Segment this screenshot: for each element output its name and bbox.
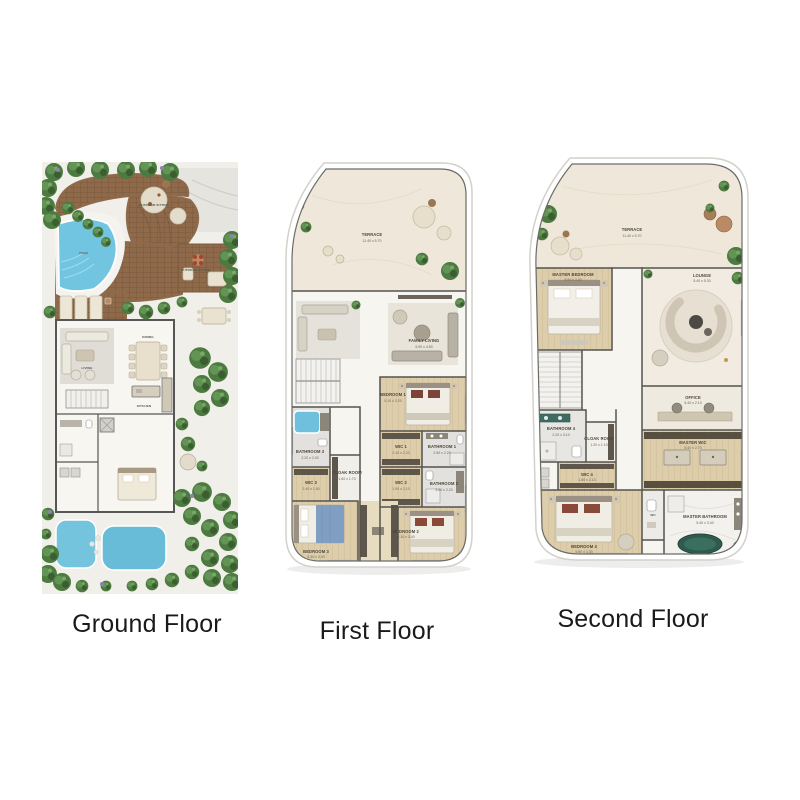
wc: WC bbox=[642, 490, 664, 540]
outdoor-sitting-right-label: OUTDOOR SITTING bbox=[181, 268, 212, 272]
stairs bbox=[538, 352, 582, 408]
room-dims: 1.20 x 1.10 bbox=[590, 443, 607, 447]
cabinet bbox=[332, 457, 338, 499]
sofa bbox=[62, 344, 71, 374]
round-chair bbox=[618, 534, 634, 550]
washer bbox=[71, 468, 80, 477]
armchair bbox=[85, 370, 95, 380]
master-wic: MASTER WIC 5.40 x 2.70 bbox=[642, 430, 744, 490]
armchair bbox=[71, 370, 81, 380]
room-dims: 1.60 x 1.70 bbox=[338, 477, 355, 481]
terrace-seat bbox=[437, 226, 451, 240]
villa-ground-interior: LIVING DINING KITCHEN bbox=[56, 320, 174, 512]
room-label: BEDROOM 1 bbox=[380, 392, 406, 397]
room-dims: 3.50 x 2.20 bbox=[435, 488, 452, 492]
room-dims: 2.20 x 2.00 bbox=[301, 456, 318, 460]
second-floor-plan: TERRACE 11.40 x 5.70 MASTER BEDROOM 5.90… bbox=[512, 150, 757, 585]
vanity bbox=[320, 413, 329, 431]
room-dims: 5.10 x 3.20 bbox=[384, 399, 401, 403]
armchair bbox=[393, 310, 407, 324]
room-dims: 5.10 x 3.40 bbox=[397, 535, 414, 539]
wardrobe bbox=[294, 469, 328, 475]
room-label: WC bbox=[650, 513, 656, 517]
master-bathroom: MASTER BATHROOM 5.40 x 3.40 bbox=[664, 490, 744, 554]
room-dims: 1.80 x 2.10 bbox=[578, 478, 595, 482]
room-label: WIC 4 bbox=[581, 472, 593, 477]
console bbox=[372, 527, 384, 535]
desk-chair bbox=[704, 403, 714, 413]
room-dims: 2.40 x 1.80 bbox=[302, 487, 319, 491]
room-label: CLOAK ROOM bbox=[332, 470, 362, 475]
terrace-seat bbox=[551, 237, 569, 255]
family-living: FAMILY LIVING 5.90 x 4.50 bbox=[388, 295, 465, 365]
room-dims: 5.30 x 3.40 bbox=[307, 555, 324, 559]
side-table bbox=[704, 328, 712, 336]
coffee-table bbox=[76, 350, 94, 361]
shower bbox=[450, 453, 464, 465]
bed bbox=[294, 505, 344, 543]
vanity bbox=[60, 420, 82, 427]
kitchen-label: KITCHEN bbox=[137, 404, 152, 408]
bedroom4: BEDROOM 4 5.90 x 3.30 bbox=[536, 490, 642, 554]
wic4: WIC 4 1.80 x 2.10 bbox=[558, 462, 616, 490]
room-label: TERRACE bbox=[362, 232, 383, 237]
sofa bbox=[302, 305, 348, 314]
stairs bbox=[66, 390, 108, 408]
sofa bbox=[448, 313, 458, 357]
wardrobe bbox=[644, 432, 742, 439]
room-label: BATHROOM 1 bbox=[428, 444, 457, 449]
room-label: MASTER BATHROOM bbox=[683, 514, 727, 519]
round-chair bbox=[180, 454, 196, 470]
basin bbox=[647, 522, 656, 528]
shower bbox=[60, 444, 72, 456]
wc-fixture bbox=[426, 471, 433, 480]
wc-fixture bbox=[457, 435, 463, 444]
room-label: BATHROOM 4 bbox=[547, 426, 576, 431]
wardrobe bbox=[560, 464, 614, 469]
room-label: MASTER WIC bbox=[679, 440, 706, 445]
bathroom4: BATHROOM 4 2.20 x 3.10 bbox=[536, 410, 586, 462]
kitchen-counter bbox=[162, 378, 172, 412]
bed bbox=[399, 383, 457, 425]
room-dims: 2.90 x 2.20 bbox=[433, 451, 450, 455]
room-label: OFFICE bbox=[685, 395, 701, 400]
terrace-table bbox=[563, 231, 570, 238]
terrace-table bbox=[428, 199, 436, 207]
wc-fixture bbox=[572, 446, 581, 457]
wc-fixture bbox=[86, 420, 92, 428]
wardrobe bbox=[644, 481, 742, 488]
wardrobe bbox=[382, 469, 420, 475]
cloak-room: CLOAK ROOM 1.20 x 1.10 bbox=[584, 422, 616, 462]
vanity bbox=[426, 433, 448, 439]
room-dims: 5.40 x 3.40 bbox=[696, 521, 713, 525]
terrace-table bbox=[323, 246, 333, 256]
room-dims: 5.90 x 4.50 bbox=[415, 345, 432, 349]
room-dims: 11.40 x 5.70 bbox=[622, 234, 641, 238]
vanity bbox=[538, 414, 570, 422]
desk bbox=[658, 412, 732, 421]
water-features bbox=[56, 520, 166, 570]
washer bbox=[60, 468, 69, 477]
first-floor-caption: First Floor bbox=[270, 617, 484, 646]
room-label: CLOAK ROOM bbox=[584, 436, 614, 441]
room-label: BATHROOM 3 bbox=[296, 449, 325, 454]
sofa bbox=[392, 351, 442, 361]
ground-floor-caption: Ground Floor bbox=[42, 610, 252, 639]
room-dims: 2.10 x 2.20 bbox=[392, 451, 409, 455]
tv-console bbox=[398, 295, 452, 299]
terrace-table bbox=[336, 255, 344, 263]
room-label: WIC 2 bbox=[395, 480, 407, 485]
floor-plans-page: POOL OUTDOOR SITTING OUTDOOR SITTING LIV… bbox=[0, 0, 800, 800]
coffee-table bbox=[689, 315, 703, 329]
room-label: LOUNGE bbox=[693, 273, 711, 278]
cabinet bbox=[608, 424, 614, 460]
room-dims: 5.40 x 5.30 bbox=[693, 279, 710, 283]
dining-table bbox=[136, 342, 160, 380]
bathtub bbox=[294, 411, 320, 433]
wardrobe bbox=[382, 433, 420, 439]
wardrobe bbox=[382, 459, 420, 465]
coffee-table bbox=[318, 329, 336, 340]
second-floor-interior: TERRACE 11.40 x 5.70 MASTER BEDROOM 5.90… bbox=[534, 164, 745, 556]
shower bbox=[668, 496, 684, 512]
lounge: LOUNGE 5.40 x 5.30 bbox=[642, 268, 744, 386]
first-floor-plan: TERRACE 11.40 x 5.70 FAMILY LIVING 5.90 … bbox=[272, 155, 482, 590]
room-label: BEDROOM 3 bbox=[303, 549, 329, 554]
wardrobe bbox=[360, 505, 367, 557]
wc-fixture bbox=[318, 439, 327, 446]
first-floor-interior: TERRACE 11.40 x 5.70 FAMILY LIVING 5.90 … bbox=[292, 169, 466, 561]
sink bbox=[136, 389, 142, 393]
terrace-seat bbox=[413, 206, 435, 228]
room-label: WIC 3 bbox=[305, 480, 317, 485]
outdoor-sitting-top-label: OUTDOOR SITTING bbox=[139, 203, 170, 207]
pool-label: POOL bbox=[79, 251, 88, 255]
room-dims: 5.40 x 2.10 bbox=[684, 401, 701, 405]
sofa bbox=[298, 317, 307, 351]
room-dims: 2.20 x 3.10 bbox=[552, 433, 569, 437]
desk-chair bbox=[672, 403, 682, 413]
room-label: BEDROOM 4 bbox=[571, 544, 597, 549]
terrace-seat bbox=[570, 248, 582, 260]
second-floor-caption: Second Floor bbox=[508, 605, 758, 634]
room-label: TERRACE bbox=[622, 227, 643, 232]
room-label: BEDROOM 2 bbox=[393, 529, 419, 534]
room-dims: 1.90 x 2.10 bbox=[392, 487, 409, 491]
wardrobe bbox=[560, 483, 614, 488]
living-label: LIVING bbox=[82, 366, 93, 370]
armchair bbox=[652, 350, 668, 366]
wc-fixture bbox=[647, 500, 656, 511]
sofa bbox=[66, 332, 108, 341]
room-label: FAMILY LIVING bbox=[409, 338, 440, 343]
room-dims: 5.90 x 3.40 bbox=[564, 278, 581, 282]
guest-bed bbox=[118, 468, 156, 500]
room-label: MASTER BEDROOM bbox=[552, 272, 594, 277]
planter bbox=[716, 216, 732, 232]
ground-floor-plan: POOL OUTDOOR SITTING OUTDOOR SITTING LIV… bbox=[42, 162, 238, 594]
room-label: BATHROOM 2 bbox=[430, 481, 459, 486]
room-label: WIC 1 bbox=[395, 444, 407, 449]
dining-label: DINING bbox=[142, 335, 154, 339]
office: OFFICE 5.40 x 2.10 bbox=[642, 386, 744, 430]
room-dims: 5.40 x 2.70 bbox=[684, 446, 701, 450]
garden-table bbox=[202, 308, 226, 324]
room-dims: 11.40 x 5.70 bbox=[362, 239, 381, 243]
stairs bbox=[296, 359, 340, 403]
floor-lamp bbox=[724, 358, 728, 362]
